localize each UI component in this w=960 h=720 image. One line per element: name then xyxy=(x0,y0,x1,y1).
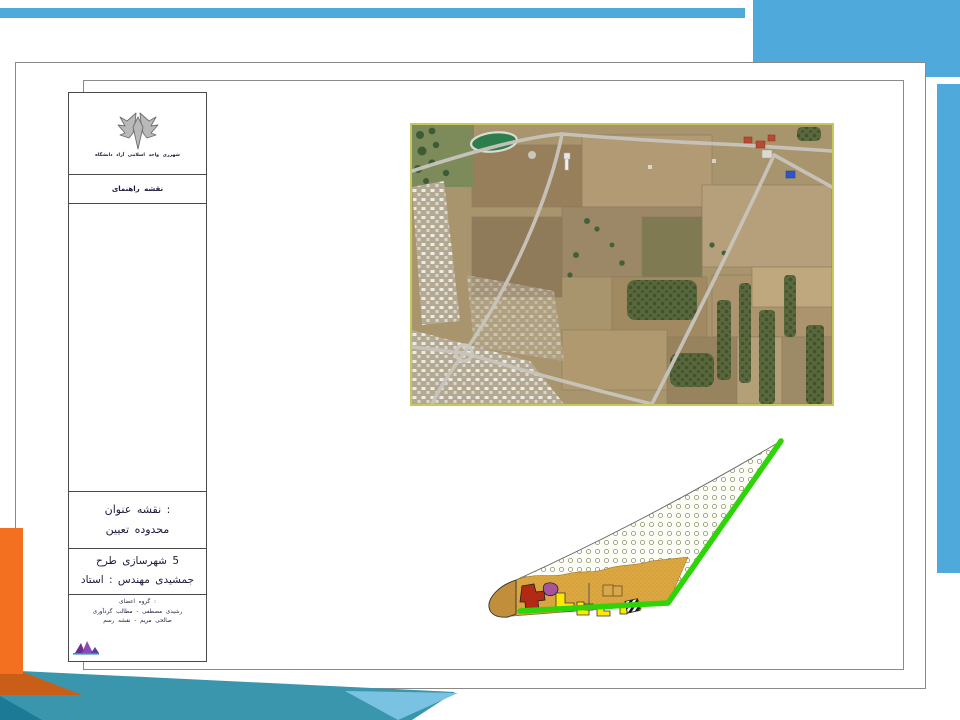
decor-right-blue-bar xyxy=(937,84,960,573)
plan-left-cap xyxy=(489,580,516,617)
university-caption: دانشگاه آزاد اسلامی واحد شهرری xyxy=(94,153,181,158)
azad-university-logo-icon xyxy=(115,109,161,153)
group-emblem-icon xyxy=(73,639,99,656)
credits-heading: اعضای گروه : xyxy=(118,598,157,608)
map-title-label: عنوان نقشه : xyxy=(104,500,172,520)
credits-member-2: رسم نقشه - مریم صالحی xyxy=(102,617,172,627)
satellite-map-image xyxy=(412,125,832,404)
landuse-plan xyxy=(476,430,796,630)
credits-cell: اعضای گروه : گردآوری مطالب - مصطفی رشیدی… xyxy=(69,594,206,660)
legend-label: راهنمای نقشه xyxy=(111,185,164,193)
map-title-cell: عنوان نقشه : تعیین محدوده xyxy=(69,491,206,548)
course-name: طرح شهرسازی 5 xyxy=(95,552,180,571)
slide-canvas: دانشگاه آزاد اسلامی واحد شهرری راهنمای ن… xyxy=(0,0,960,720)
professor-name: استاد : مهندس جمشیدی xyxy=(80,571,195,590)
course-cell: طرح شهرسازی 5 استاد : مهندس جمشیدی xyxy=(69,548,206,594)
satellite-map xyxy=(410,123,834,406)
legend-body-cell xyxy=(69,203,206,491)
legend-cell: راهنمای نقشه xyxy=(69,174,206,203)
map-title-value: تعیین محدوده xyxy=(105,520,171,540)
decor-left-orange-bar xyxy=(0,528,23,674)
decor-top-blue-bar xyxy=(0,8,745,18)
plan-barn xyxy=(603,585,622,596)
credits-member-1: گردآوری مطالب - مصطفی رشیدی xyxy=(92,608,184,618)
title-block: دانشگاه آزاد اسلامی واحد شهرری راهنمای ن… xyxy=(68,92,207,662)
university-logo-cell: دانشگاه آزاد اسلامی واحد شهرری xyxy=(69,93,206,174)
landuse-plan-image xyxy=(476,430,796,630)
